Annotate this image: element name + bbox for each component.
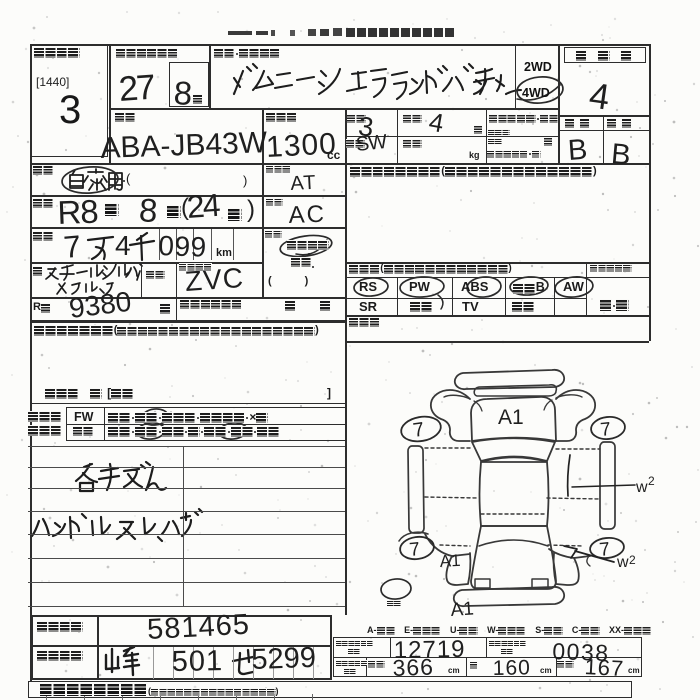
svg-text:2: 2 — [629, 553, 636, 567]
svg-text:A1: A1 — [450, 598, 475, 621]
svg-text:w: w — [616, 554, 629, 571]
svg-text:2: 2 — [648, 474, 655, 488]
svg-text:w: w — [635, 479, 648, 496]
svg-text:A1: A1 — [498, 406, 524, 429]
svg-text:7: 7 — [412, 419, 426, 442]
svg-text:A1: A1 — [439, 551, 461, 571]
svg-text:7: 7 — [408, 539, 421, 561]
svg-text:7: 7 — [599, 419, 612, 441]
